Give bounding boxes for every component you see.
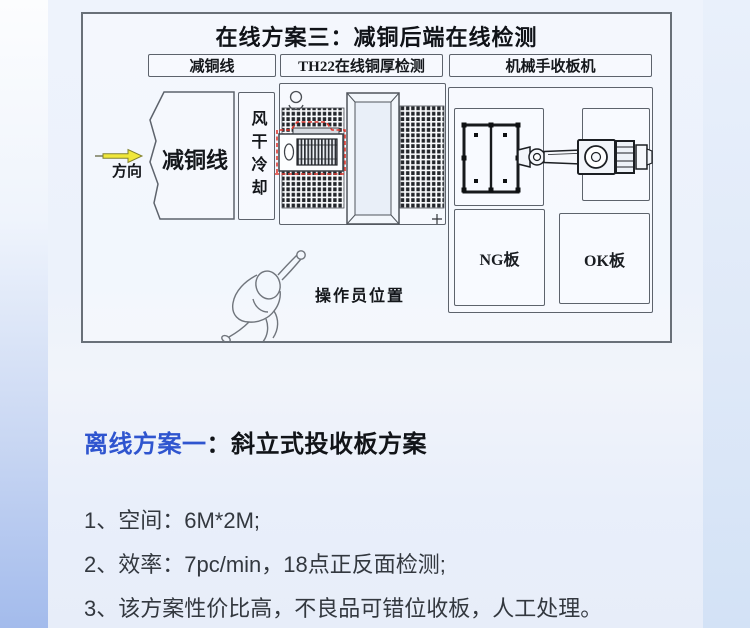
layout-diagram: 在线方案三：减铜后端在线检测 减铜线 TH22在线铜厚检测 机械手收板机 NG板…	[81, 12, 672, 343]
ok-board-box: OK板	[559, 213, 650, 304]
operator-figure	[221, 251, 306, 341]
list-item-efficiency: 2、效率：7pc/min，18点正反面检测;	[84, 552, 446, 578]
heading-highlight: 离线方案一	[84, 431, 207, 458]
list-item-costperf: 3、该方案性价比高，不良品可错位收板，人工处理。	[84, 596, 602, 622]
direction-label: 方向	[107, 160, 147, 181]
heading-rest: ：斜立式投收板方案	[207, 431, 428, 458]
right-gradient-strip	[703, 0, 750, 628]
list-item-space: 1、空间：6M*2M;	[84, 508, 260, 534]
reduce-line-label: 减铜线	[159, 143, 231, 175]
air-dry-cooling-box: 风干冷却	[238, 92, 275, 220]
ng-board-box: NG板	[454, 209, 545, 306]
column-header-th22: TH22在线铜厚检测	[280, 54, 443, 77]
operator-position-label: 操作员位置	[315, 282, 405, 306]
column-header-robot: 机械手收板机	[449, 54, 652, 77]
column-header-reduce-line: 减铜线	[148, 54, 276, 77]
panel-area-box	[454, 108, 544, 206]
left-gradient-strip	[0, 0, 48, 628]
page: 在线方案三：减铜后端在线检测 减铜线 TH22在线铜厚检测 机械手收板机 NG板…	[0, 0, 750, 628]
pickup-area-box	[582, 108, 650, 201]
offline-section-heading: 离线方案一：斜立式投收板方案	[84, 424, 427, 459]
air-dry-cooling-label: 风干冷却	[245, 110, 269, 202]
ok-board-label: OK板	[584, 247, 625, 271]
th22-zone-box	[279, 83, 446, 225]
diagram-title: 在线方案三：减铜后端在线检测	[83, 20, 670, 52]
ng-board-label: NG板	[479, 246, 519, 270]
